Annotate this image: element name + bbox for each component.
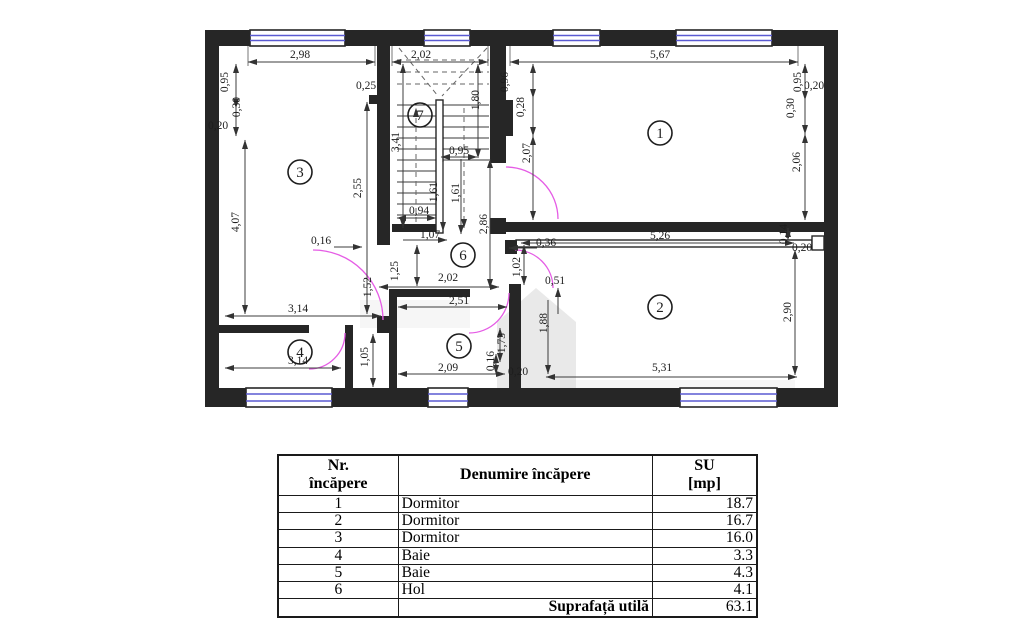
dimension-label: 5,67 [650,49,670,61]
cell-room-area: 16.0 [652,530,757,547]
header-denumire: Denumire încăpere [398,455,652,495]
cell-room-name: Hol [398,582,652,599]
cell-room-area: 16.7 [652,513,757,530]
dimension-label: 0,28 [515,97,527,117]
dimension-label: 1,25 [389,261,401,281]
window-bottom-3 [680,388,777,407]
room-number: 6 [459,248,467,264]
cell-room-number: 5 [278,564,398,581]
dimension-label: 2,02 [411,49,431,61]
room-number: 3 [296,165,304,181]
dimension-label: 1,80 [470,90,482,110]
cell-room-number: 1 [278,495,398,512]
dimension-label: 0,36 [536,237,556,249]
dimension-label: 2,55 [352,178,364,198]
dimension-label: 0,96 [499,72,511,92]
room-number: 5 [455,339,463,355]
dimension-label: 5,26 [650,230,670,242]
header-su: SU [mp] [652,455,757,495]
room-number: 7 [416,108,424,124]
dimension-label: 1,88 [538,313,550,333]
cell-room-name: Baie [398,564,652,581]
cell-room-name: Dormitor [398,495,652,512]
dimension-label: 0,30 [785,98,797,118]
dimension-label: 1,61 [428,182,440,202]
stair-center-wall [436,100,443,233]
sum-empty-cell [278,599,398,617]
table-row: 4Baie3.3 [278,547,757,564]
table-row: 6Hol4.1 [278,582,757,599]
dimension-label: 2,90 [782,302,794,322]
cell-room-area: 18.7 [652,495,757,512]
dimension-label: 2,07 [521,143,533,163]
window-top-3 [553,30,600,46]
dimension-label: 2,02 [438,272,458,284]
dimension-label: 0,95 [792,72,804,92]
scanned-floorplan-document: { "plan": { "wall_color": "#262626", "wi… [0,0,1024,603]
window-top-2 [424,30,470,46]
room-area-table: Nr. încăpere Denumire încăpere SU [mp] 1… [277,454,758,618]
dimension-label: 0,20 [804,80,824,92]
cell-room-area: 4.3 [652,564,757,581]
dimension-label: 0,20 [508,366,528,378]
sum-value: 63.1 [652,599,757,617]
dimension-label: 0,51 [545,275,565,287]
table-row: 1Dormitor18.7 [278,495,757,512]
dimension-label: 1,07 [420,229,440,241]
door-room4 [309,333,345,369]
dimension-label: 0,16 [485,351,497,371]
cell-room-number: 3 [278,530,398,547]
dimension-label: 3,14 [288,303,308,315]
dimension-label: 0,20 [792,242,812,254]
cell-room-number: 4 [278,547,398,564]
table-row: 2Dormitor16.7 [278,513,757,530]
room-number: 2 [656,300,664,316]
dimension-label: 0,30 [231,97,243,117]
dimension-label: 1,61 [450,183,462,203]
table-row: 3Dormitor16.0 [278,530,757,547]
window-bottom-1 [246,388,332,407]
sum-label: Suprafață utilă [398,599,652,617]
window-bottom-2 [428,388,468,407]
cell-room-name: Baie [398,547,652,564]
dimension-label: 0,95 [449,145,469,157]
dimension-label: 1,73 [496,333,508,353]
dimension-label: 4,07 [230,212,242,232]
dimension-label: 0,16 [311,235,331,247]
dimension-label: 0,95 [219,72,231,92]
table-sum-row: Suprafață utilă 63.1 [278,599,757,617]
dimension-label: 1,05 [359,347,371,367]
floor-plan-drawing: 2,982,025,670,950,300,204,070,252,551,80… [0,0,1024,445]
cell-room-name: Dormitor [398,530,652,547]
cell-room-name: Dormitor [398,513,652,530]
watermark [360,288,795,400]
dimension-label: 1,02 [511,257,523,277]
window-top-4 [676,30,772,46]
dimension-label: 0,14 [778,224,790,244]
dimension-label: 0,94 [409,205,429,217]
dimension-label: 1,52 [362,277,374,297]
dimension-label: 0,20 [208,120,228,132]
cell-room-area: 3.3 [652,547,757,564]
cell-room-area: 4.1 [652,582,757,599]
cell-room-number: 2 [278,513,398,530]
window-top-1 [250,30,345,46]
dimension-label: 2,06 [791,152,803,172]
dimension-label: 2,98 [290,49,310,61]
dimension-label: 2,86 [478,214,490,234]
dimension-label: 2,51 [449,295,469,307]
dimension-label: 3,41 [390,132,402,152]
cell-room-number: 6 [278,582,398,599]
dimension-label: 5,31 [652,362,672,374]
dimension-label: 2,09 [438,362,458,374]
room-number: 1 [656,126,664,142]
table-row: 5Baie4.3 [278,564,757,581]
dimension-label: 0,25 [356,80,376,92]
door-room1 [506,167,558,219]
room-number: 4 [296,345,304,361]
header-nr: Nr. încăpere [278,455,398,495]
